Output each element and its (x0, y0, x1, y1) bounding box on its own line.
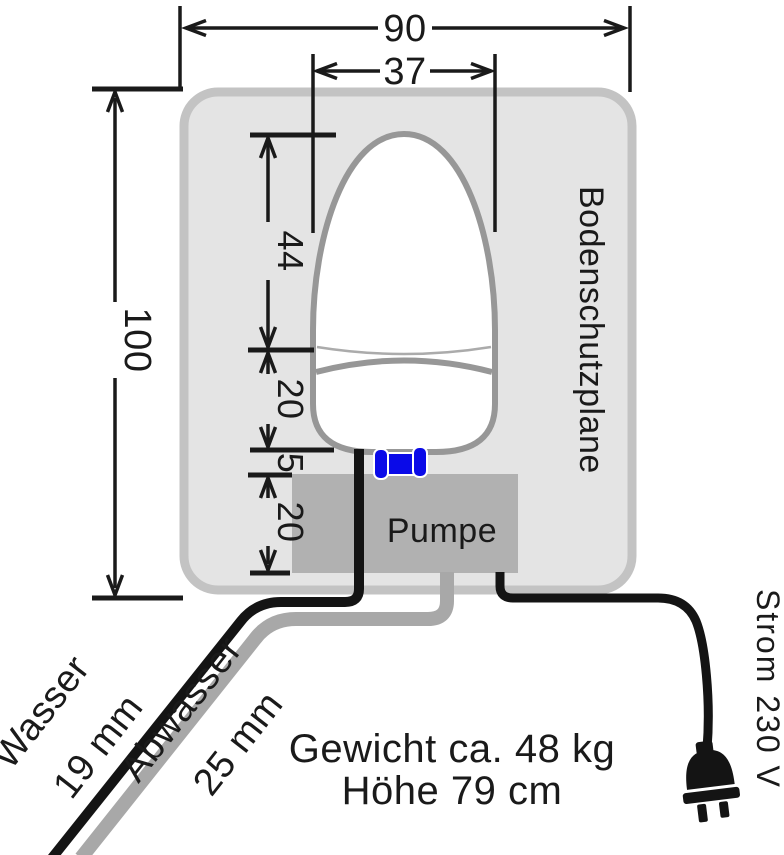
power-plug-icon (676, 738, 742, 824)
toilet-top-view (313, 134, 495, 452)
dim-overall-depth-label: 100 (116, 308, 158, 373)
dim-gap-label: 5 (270, 453, 311, 474)
weight-label: Gewicht ca. 48 kg (289, 727, 615, 771)
height-label: Höhe 79 cm (342, 769, 563, 813)
plug-body (683, 747, 735, 790)
dim-seat-depth-label: 44 (270, 230, 311, 271)
technical-diagram: 90 37 100 44 20 5 (0, 0, 784, 855)
dim-overall-depth: 100 (92, 89, 183, 598)
plug-prong-right (719, 801, 730, 818)
dim-overall-width-label: 90 (383, 8, 426, 50)
floor-mat-label: Bodenschutzplane (572, 186, 610, 474)
dim-tank-depth-label: 20 (270, 378, 311, 419)
pump-label: Pumpe (387, 512, 497, 550)
power-label: Strom 230 V (750, 589, 784, 789)
power-cable (500, 572, 708, 749)
drain-connector-cap-left (374, 449, 388, 479)
plug-prong-left (697, 804, 708, 823)
dim-seat-width-label: 37 (383, 51, 426, 93)
dim-pump-depth-label: 20 (270, 501, 311, 542)
drain-connector-cap-right (413, 447, 427, 477)
waste-hose-label: Abwasser 25 mm (112, 629, 302, 830)
toilet-outline (313, 134, 495, 452)
